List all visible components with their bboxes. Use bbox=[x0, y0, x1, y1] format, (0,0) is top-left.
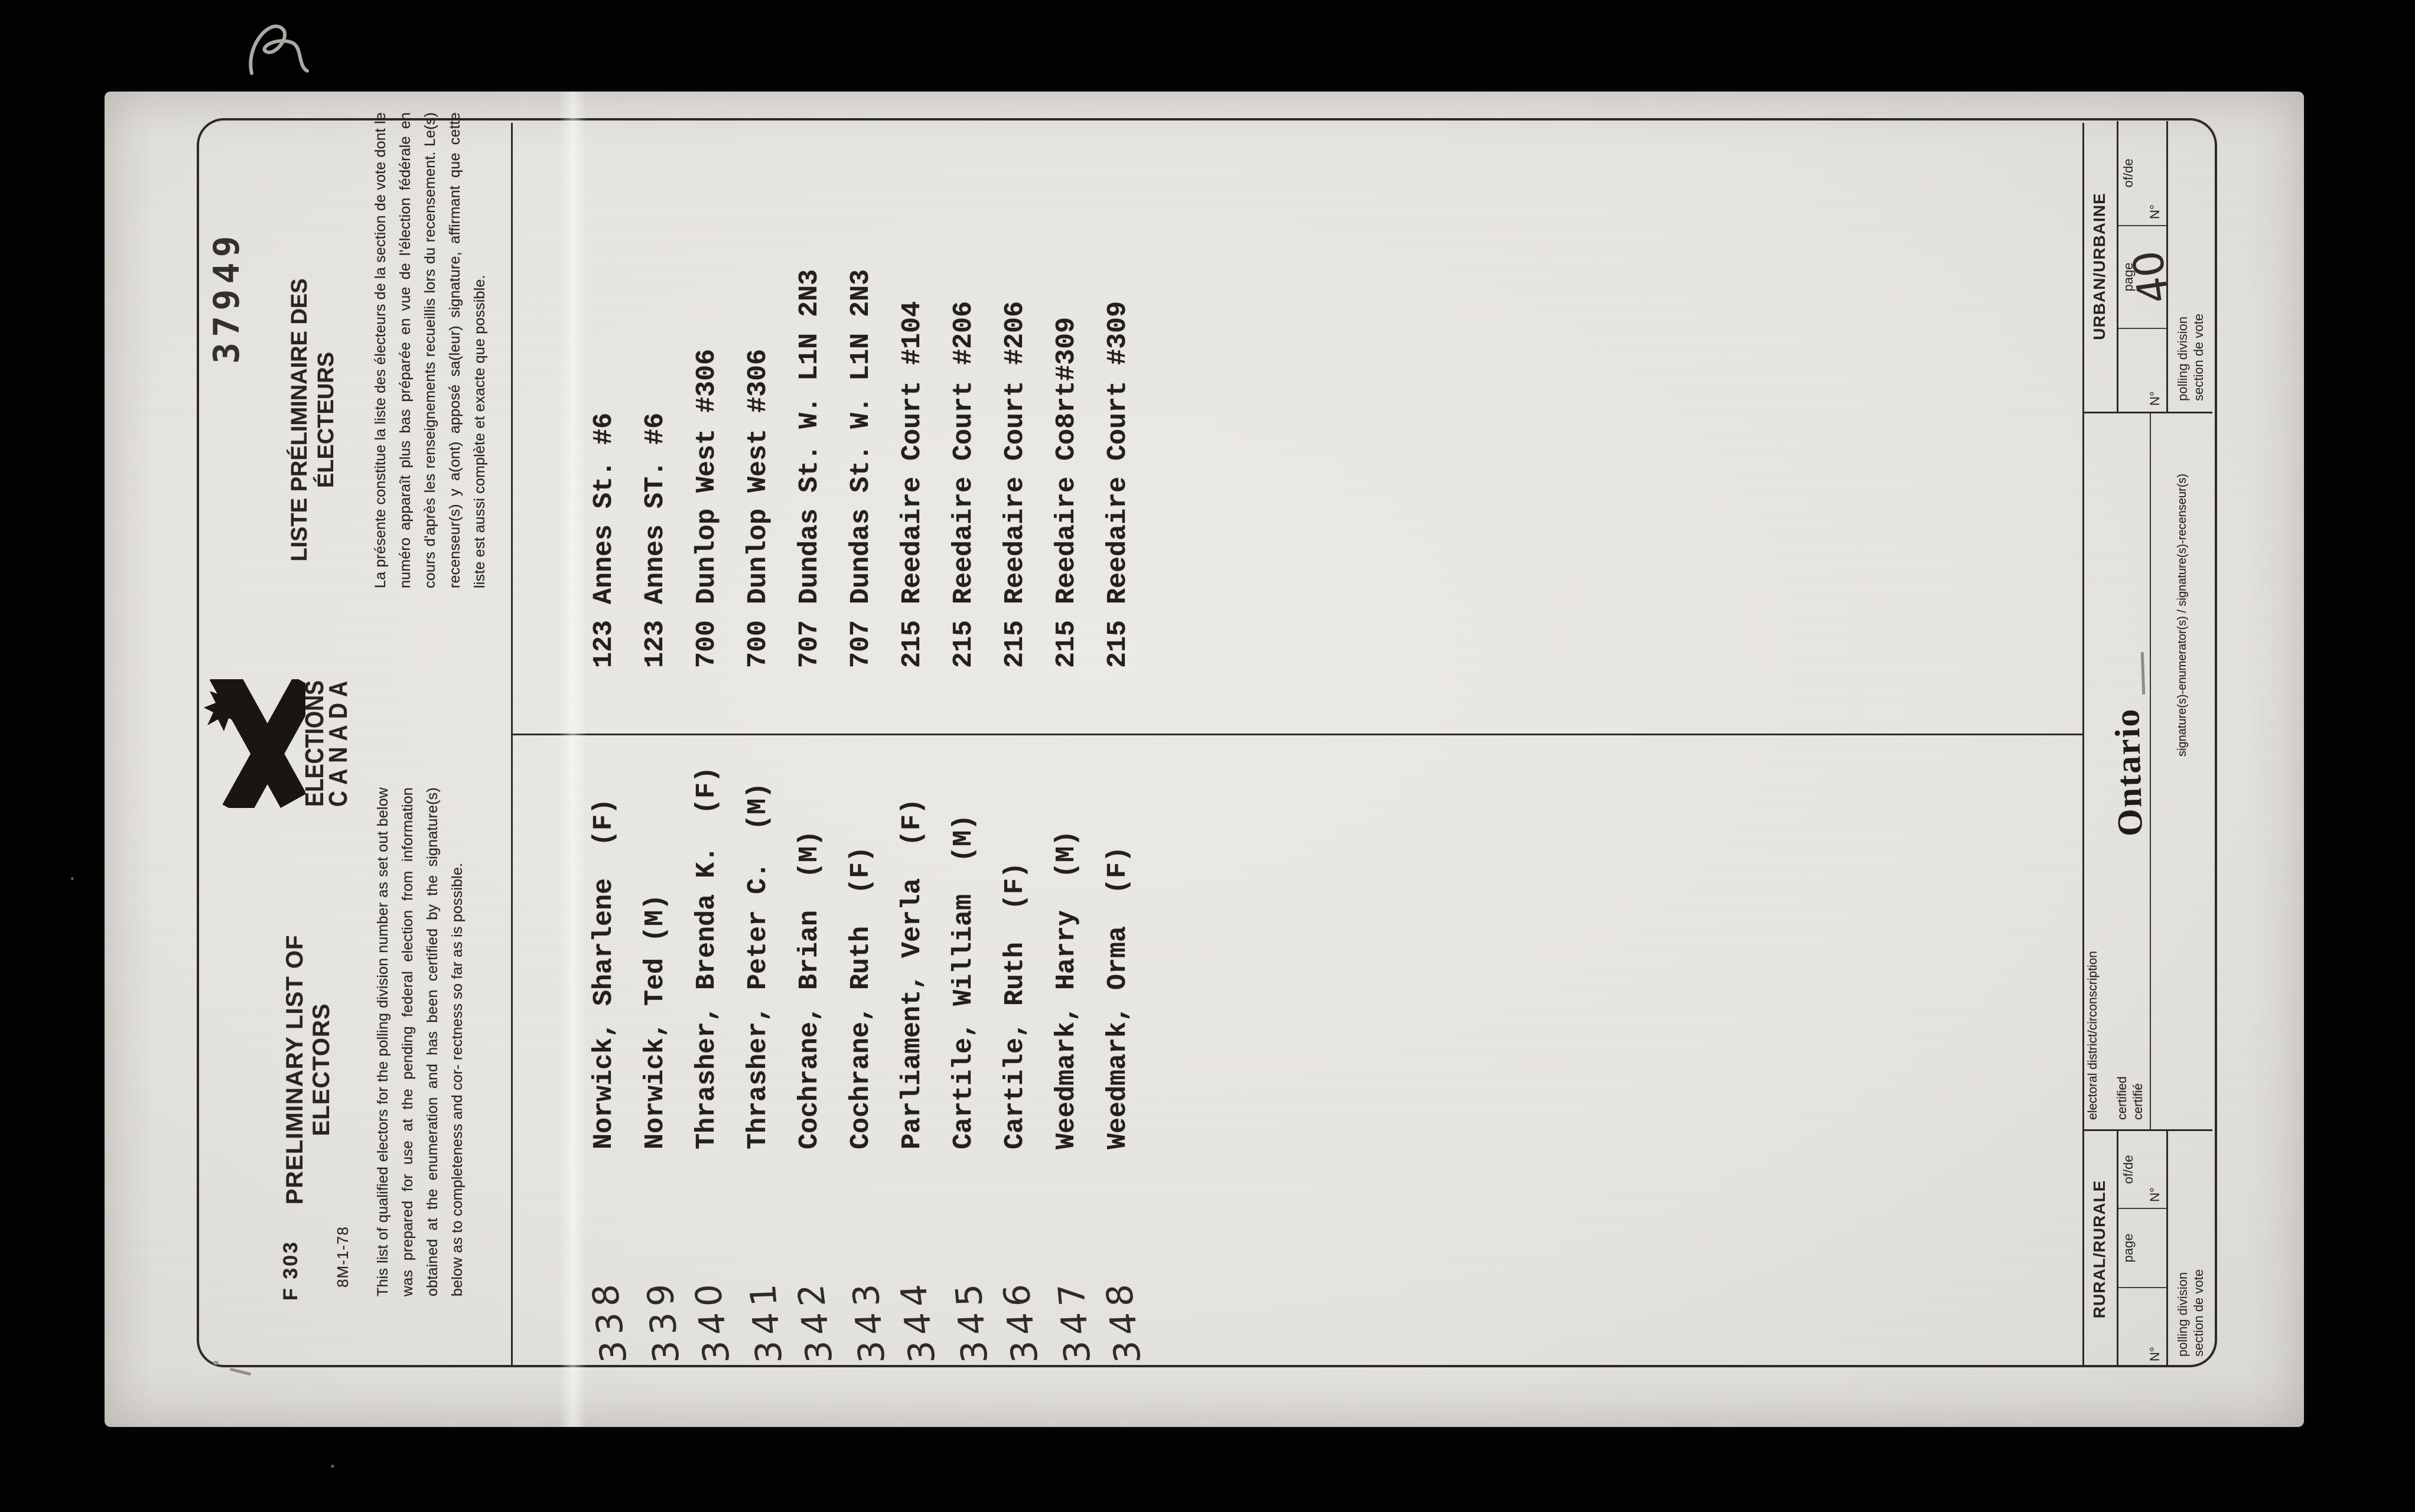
title-french: LISTE PRÉLIMINAIRE DESÉLECTEURS bbox=[287, 275, 340, 565]
elector-address: 215 Reedaire Court #206 bbox=[949, 301, 979, 668]
rural-ofde-cell: of/de N° bbox=[2118, 1131, 2166, 1208]
scanner-scribble-mark bbox=[241, 17, 330, 99]
dust-speck bbox=[71, 877, 74, 880]
scanned-page: F 303 8M-1-78 PRELIMINARY LIST OFELECTOR… bbox=[105, 92, 2304, 1427]
province-stamp: Ontario bbox=[2107, 708, 2151, 837]
urban-ofde-cell: of/de N° bbox=[2118, 121, 2166, 225]
elector-address: 215 Reedaire Court #206 bbox=[1000, 301, 1030, 668]
electoral-district-label: electoral district/circonscription bbox=[2086, 951, 2100, 1120]
logo-wordmark-line1: ELECTIONS bbox=[303, 680, 327, 807]
urban-label: URBAN/URBAINE bbox=[2082, 121, 2118, 412]
elector-row: 346 Cartile, Ruth (F) 215 Reedaire Court… bbox=[1000, 92, 1036, 1427]
elector-name: Cochrane, Ruth (F) bbox=[846, 846, 876, 1149]
elector-row: 339 Norwick, Ted (M) 123 Annes ST. #6 bbox=[640, 92, 676, 1427]
elections-canada-logo bbox=[204, 679, 305, 808]
elector-row: 343 Cochrane, Ruth (F) 707 Dundas St. W.… bbox=[846, 92, 881, 1427]
logo-wordmark-line2: CANADA bbox=[327, 675, 350, 807]
form-f303: F 303 8M-1-78 PRELIMINARY LIST OFELECTOR… bbox=[105, 92, 2304, 1427]
certified-en: certified bbox=[2114, 1076, 2130, 1120]
elector-address: 123 Annes St. #6 bbox=[589, 413, 619, 668]
elector-name: Weedmark, Harry (M) bbox=[1052, 830, 1082, 1149]
polling-division-line2: section de vote bbox=[2191, 1131, 2206, 1357]
signature-label: signature(s)-enumerator(s) / signature(s… bbox=[2176, 474, 2189, 757]
elector-row: 344 Parliament, Verla (F) 215 Reedaire C… bbox=[897, 92, 933, 1427]
urban-box: URBAN/URBAINE N° page 40 of/de N° pol bbox=[2082, 121, 2212, 413]
elector-name: Weedmark, Orma (F) bbox=[1103, 846, 1133, 1149]
urban-polling-division-label: polling division section de vote bbox=[2166, 121, 2212, 412]
pencil-mark-dot bbox=[213, 1361, 219, 1365]
title-english: PRELIMINARY LIST OFELECTORS bbox=[282, 930, 335, 1210]
elector-address: 215 Reedaire Court #309 bbox=[1103, 301, 1133, 668]
elector-name: Norwick, Ted (M) bbox=[640, 894, 671, 1149]
no-label: N° bbox=[2147, 1347, 2163, 1361]
polling-division-line1: polling division bbox=[2175, 121, 2191, 401]
signature-line bbox=[2150, 413, 2151, 1131]
rural-box: RURAL/RURALE N° page of/de N° polling di… bbox=[2082, 1129, 2212, 1367]
elector-row: 340 Thrasher, Brenda K. (F) 700 Dunlop W… bbox=[692, 92, 727, 1427]
logo-wordmark: ELECTIONS CANADA bbox=[303, 651, 350, 807]
elector-row: 342 Cochrane, Brian (M) 707 Dundas St. W… bbox=[795, 92, 830, 1427]
urban-page-cell: page 40 bbox=[2118, 225, 2166, 328]
elector-address: 215 Reedaire Co8rt#309 bbox=[1052, 317, 1082, 668]
elector-address: 707 Dundas St. W. L1N 2N3 bbox=[795, 269, 825, 668]
ofde-label: of/de bbox=[2121, 121, 2136, 225]
serial-number-stamp: 37949 bbox=[206, 230, 248, 364]
elector-address: 123 Annes ST. #6 bbox=[640, 413, 671, 668]
elector-row: 345 Cartile, William (M) 215 Reedaire Co… bbox=[949, 92, 984, 1427]
elector-row: 348 Weedmark, Orma (F) 215 Reedaire Cour… bbox=[1103, 92, 1138, 1427]
elector-name: Thrasher, Peter C. (M) bbox=[743, 783, 773, 1149]
elector-name: Cartile, Ruth (F) bbox=[1000, 862, 1030, 1149]
dust-speck bbox=[331, 1465, 334, 1468]
form-outer-border bbox=[197, 118, 2217, 1367]
rural-no-cell: N° bbox=[2118, 1287, 2166, 1367]
no-label: N° bbox=[2147, 1187, 2163, 1202]
rural-label: RURAL/RURALE bbox=[2082, 1131, 2118, 1367]
urban-no-cell: N° bbox=[2118, 328, 2166, 412]
elector-name: Cartile, William (M) bbox=[949, 814, 979, 1149]
rural-page-cell: page bbox=[2118, 1208, 2166, 1287]
paragraph-english: This list of qualified electors for the … bbox=[370, 787, 470, 1296]
form-number: F 303 bbox=[279, 1240, 302, 1301]
no-label: N° bbox=[2147, 391, 2163, 406]
ofde-label: of/de bbox=[2121, 1131, 2136, 1208]
elector-name: Norwick, Sharlene (F) bbox=[589, 799, 619, 1149]
elector-row: 338 Norwick, Sharlene (F) 123 Annes St. … bbox=[589, 92, 624, 1427]
rural-polling-division-label: polling division section de vote bbox=[2166, 1131, 2212, 1367]
header-rule bbox=[511, 123, 513, 1367]
no-label: N° bbox=[2147, 204, 2163, 219]
certified-label: certified certifié bbox=[2114, 1076, 2146, 1120]
page-label: page bbox=[2121, 1209, 2136, 1287]
elector-address: 707 Dundas St. W. L1N 2N3 bbox=[846, 269, 876, 668]
polling-division-line1: polling division bbox=[2175, 1131, 2191, 1357]
elector-address: 700 Dunlop West #306 bbox=[692, 349, 722, 668]
scanned-document-screenshot: F 303 8M-1-78 PRELIMINARY LIST OFELECTOR… bbox=[0, 0, 2415, 1512]
print-code: 8M-1-78 bbox=[334, 1226, 352, 1288]
polling-division-line2: section de vote bbox=[2191, 121, 2206, 401]
elector-name: Parliament, Verla (F) bbox=[897, 799, 927, 1149]
elector-address: 700 Dunlop West #306 bbox=[743, 349, 773, 668]
elector-name: Cochrane, Brian (M) bbox=[795, 830, 825, 1149]
certified-fr: certifié bbox=[2130, 1076, 2146, 1120]
paragraph-french: La présente constitue la liste des élect… bbox=[368, 112, 492, 588]
elector-row: 347 Weedmark, Harry (M) 215 Reedaire Co8… bbox=[1052, 92, 1087, 1427]
elector-row: 341 Thrasher, Peter C. (M) 700 Dunlop We… bbox=[743, 92, 779, 1427]
elector-address: 215 Reedaire Court #104 bbox=[897, 301, 927, 668]
elector-name: Thrasher, Brenda K. (F) bbox=[692, 767, 722, 1149]
